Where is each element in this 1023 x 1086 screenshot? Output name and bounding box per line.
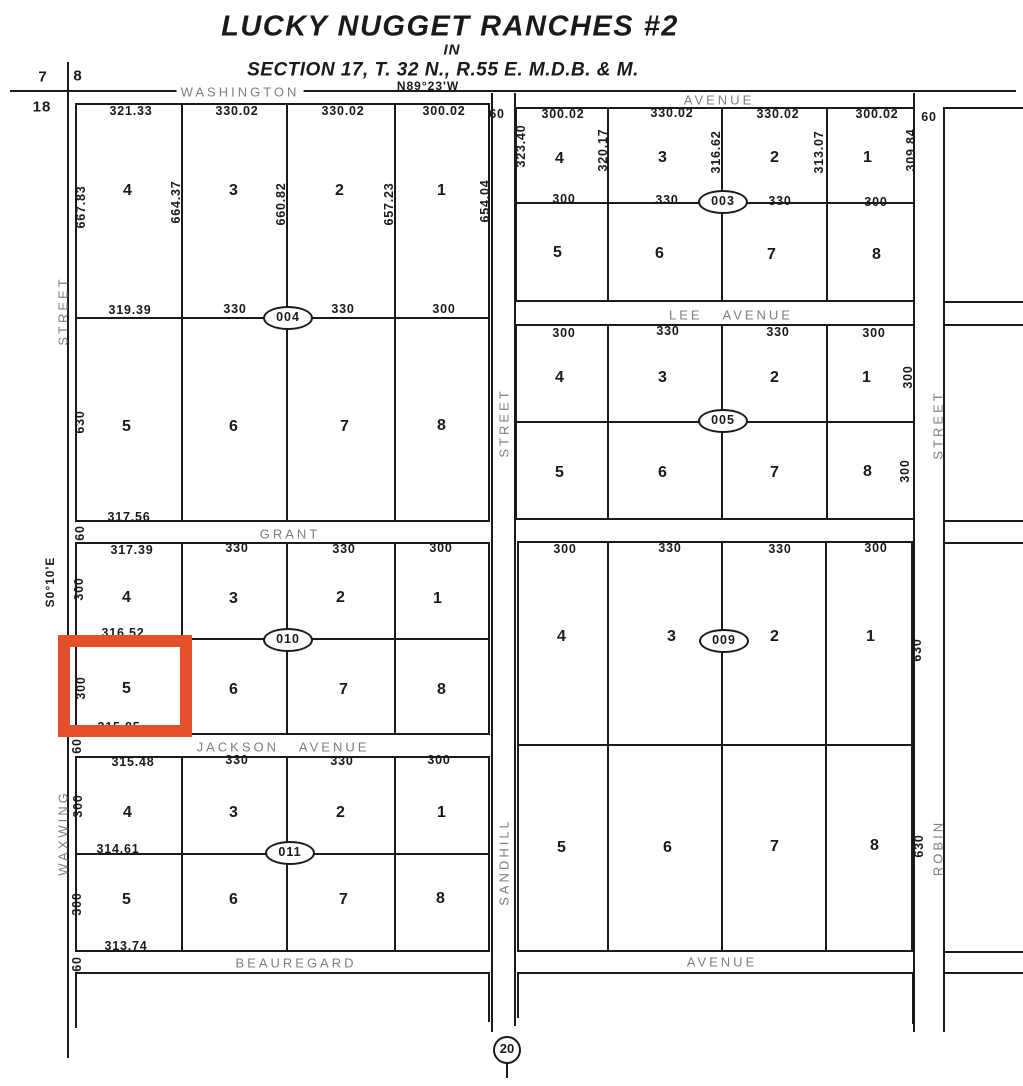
block-number-badge: 005 <box>698 409 748 433</box>
street-label-beauregard-avenue: AVENUE <box>687 956 758 969</box>
dimension-label: 319.39 <box>108 304 151 317</box>
dimension-label: 316.62 <box>710 130 723 173</box>
dimension-label: 330 <box>223 303 246 316</box>
street-label-beauregard: BEAUREGARD <box>235 957 356 970</box>
north-bearing-label: N89°23'W <box>397 80 459 92</box>
lot-number: 2 <box>336 590 346 606</box>
sandhill-street-west-line <box>491 93 493 1032</box>
selected-parcel-highlight[interactable] <box>58 635 192 737</box>
lot-number: 6 <box>655 246 665 262</box>
section-marker-18: 18 <box>33 100 52 115</box>
dimension-label: 300 <box>432 303 455 316</box>
dimension-label: 667.83 <box>75 185 88 228</box>
dimension-label: 330 <box>658 542 681 555</box>
plat-map: LUCKY NUGGET RANCHES #2 IN SECTION 17, T… <box>0 0 1023 1086</box>
dimension-label: 300 <box>552 327 575 340</box>
title-in-label: IN <box>444 43 461 58</box>
dimension-label: 630 <box>911 638 924 661</box>
street-label-washington-avenue: AVENUE <box>680 94 759 107</box>
section-20-tick <box>506 1063 508 1078</box>
block-number-badge: 011 <box>265 841 315 865</box>
lot-number: 4 <box>123 183 133 199</box>
dimension-label: 300 <box>73 577 86 600</box>
block-009-lot-line <box>721 541 723 952</box>
block-005-border <box>515 518 915 520</box>
lot-number: 8 <box>870 838 880 854</box>
street-width-label: 60 <box>71 738 84 754</box>
lot-number: 4 <box>123 805 133 821</box>
dimension-label: 330 <box>766 326 789 339</box>
dimension-label: 330 <box>655 194 678 207</box>
street-label-robin: ROBIN <box>932 820 945 876</box>
lot-number: 3 <box>667 629 677 645</box>
block-004-lot-line <box>394 103 396 522</box>
lot-number: 3 <box>229 183 239 199</box>
dimension-label: 330 <box>331 303 354 316</box>
partial-block-line <box>945 324 1023 326</box>
lot-number: 1 <box>437 183 447 199</box>
block-number-badge: 009 <box>699 629 749 653</box>
dimension-label: 300 <box>553 543 576 556</box>
lot-number: 7 <box>767 247 777 263</box>
partial-block-line <box>488 972 490 1022</box>
block-003-lot-line <box>826 107 828 302</box>
dimension-label: 300 <box>899 459 912 482</box>
block-number-badge: 004 <box>263 306 313 330</box>
lot-number: 7 <box>340 419 350 435</box>
lot-number: 4 <box>557 629 567 645</box>
dimension-label: 321.33 <box>109 105 152 118</box>
street-label-sandhill: SANDHILL <box>498 818 511 906</box>
block-009-border <box>517 541 519 952</box>
dimension-label: 300 <box>864 542 887 555</box>
dimension-label: 330 <box>225 754 248 767</box>
lot-number: 4 <box>555 370 565 386</box>
dimension-label: 330.02 <box>321 105 364 118</box>
page-title: LUCKY NUGGET RANCHES #2 <box>221 13 679 42</box>
lot-number: 2 <box>770 150 780 166</box>
dimension-label: 320.17 <box>597 128 610 171</box>
lot-number: 6 <box>658 465 668 481</box>
dimension-label: 313.07 <box>813 130 826 173</box>
lot-number: 1 <box>866 629 876 645</box>
lot-number: 8 <box>436 891 446 907</box>
block-009-lot-line <box>607 541 609 952</box>
lot-number: 6 <box>229 419 239 435</box>
street-label-grant: GRANT <box>260 528 321 541</box>
street-label-lee-avenue: LEE AVENUE <box>669 309 793 322</box>
block-number-badge: 010 <box>263 628 313 652</box>
lot-number: 5 <box>553 245 563 261</box>
lot-number: 8 <box>872 247 882 263</box>
robin-street-east-line <box>943 107 945 1032</box>
lot-number: 5 <box>122 892 132 908</box>
section-marker-7: 7 <box>38 70 47 85</box>
dimension-label: 323.40 <box>515 124 528 167</box>
dimension-label: 330 <box>768 195 791 208</box>
block-009-lot-line <box>825 541 827 952</box>
block-004-border <box>75 103 77 522</box>
lot-number: 1 <box>862 370 872 386</box>
partial-block-line <box>75 972 77 1028</box>
dimension-label: 300 <box>71 892 84 915</box>
dimension-label: 300 <box>552 193 575 206</box>
lot-number: 2 <box>336 805 346 821</box>
dimension-label: 300.02 <box>855 108 898 121</box>
lot-number: 5 <box>557 840 567 856</box>
dimension-label: 300.02 <box>422 105 465 118</box>
dimension-label: 317.56 <box>107 511 150 524</box>
lot-number: 3 <box>658 150 668 166</box>
block-009-border <box>911 541 913 952</box>
block-number-badge: 003 <box>698 190 748 214</box>
lot-number: 7 <box>770 839 780 855</box>
street-width-label: 60 <box>489 108 505 121</box>
street-label-sandhill-street: STREET <box>498 388 511 457</box>
street-width-label: 60 <box>921 111 937 124</box>
dimension-label: 300 <box>429 542 452 555</box>
dimension-label: 660.82 <box>275 182 288 225</box>
west-bearing-label: S0°10'E <box>44 557 56 608</box>
lot-number: 4 <box>555 151 565 167</box>
dimension-label: 330 <box>330 755 353 768</box>
dimension-label: 657.23 <box>383 182 396 225</box>
partial-block-line <box>945 542 1023 544</box>
partial-block-line <box>945 520 1023 522</box>
dimension-label: 314.61 <box>96 843 139 856</box>
lot-number: 3 <box>229 591 239 607</box>
dimension-label: 330 <box>225 542 248 555</box>
dimension-label: 330.02 <box>756 108 799 121</box>
street-width-label: 60 <box>71 956 84 972</box>
lot-number: 2 <box>335 183 345 199</box>
dimension-label: 330.02 <box>215 105 258 118</box>
lot-number: 1 <box>433 591 443 607</box>
partial-block-line <box>75 972 490 974</box>
block-004-border <box>488 103 490 522</box>
lot-number: 4 <box>122 590 132 606</box>
block-009-border <box>517 950 913 952</box>
partial-block-line <box>517 972 519 1018</box>
lot-number: 6 <box>229 892 239 908</box>
lot-number: 6 <box>229 682 239 698</box>
block-003-border <box>515 300 915 302</box>
dimension-label: 330 <box>656 325 679 338</box>
lot-number: 7 <box>339 892 349 908</box>
dimension-label: 654.04 <box>479 179 492 222</box>
street-label-washington: WASHINGTON <box>177 86 304 99</box>
dimension-label: 300 <box>427 754 450 767</box>
section-marker-8: 8 <box>73 69 82 84</box>
west-section-line <box>67 62 69 1058</box>
dimension-label: 313.74 <box>104 940 147 953</box>
lot-number: 3 <box>229 805 239 821</box>
lot-number: 6 <box>663 840 673 856</box>
street-label-jackson-avenue: JACKSON AVENUE <box>197 741 370 754</box>
partial-block-line <box>945 972 1023 974</box>
dimension-label: 300 <box>862 327 885 340</box>
section-marker-20: 20 <box>493 1036 521 1064</box>
dimension-label: 309.84 <box>905 128 918 171</box>
section-subtitle: SECTION 17, T. 32 N., R.55 E. M.D.B. & M… <box>247 61 639 80</box>
dimension-label: 630 <box>913 834 926 857</box>
dimension-label: 300 <box>72 794 85 817</box>
dimension-label: 330.02 <box>650 107 693 120</box>
partial-block-line <box>945 107 1023 109</box>
lot-number: 2 <box>770 629 780 645</box>
dimension-label: 664.37 <box>170 180 183 223</box>
partial-block-line <box>517 972 915 974</box>
street-width-label: 60 <box>74 525 87 541</box>
partial-block-line <box>945 951 1023 953</box>
lot-number: 8 <box>437 418 447 434</box>
lot-number: 2 <box>770 370 780 386</box>
dimension-label: 630 <box>74 410 87 433</box>
street-label-waxwing: WAXWING <box>57 790 70 876</box>
lot-number: 7 <box>339 682 349 698</box>
lot-number: 1 <box>863 150 873 166</box>
lot-number: 5 <box>555 465 565 481</box>
lot-number: 8 <box>863 464 873 480</box>
street-label-waxwing-street: STREET <box>57 276 70 345</box>
block-009-mid-line <box>517 744 913 746</box>
lot-number: 3 <box>658 370 668 386</box>
dimension-label: 300.02 <box>541 108 584 121</box>
north-section-line <box>10 90 1016 92</box>
block-004-lot-line <box>181 103 183 522</box>
dimension-label: 315.48 <box>111 756 154 769</box>
partial-block-line <box>945 301 1023 303</box>
lot-number: 5 <box>122 419 132 435</box>
lot-number: 8 <box>437 682 447 698</box>
street-label-robin-street: STREET <box>932 390 945 459</box>
dimension-label: 330 <box>768 543 791 556</box>
dimension-label: 317.39 <box>110 544 153 557</box>
dimension-label: 300 <box>864 196 887 209</box>
lot-number: 1 <box>437 805 447 821</box>
dimension-label: 330 <box>332 543 355 556</box>
lot-number: 7 <box>770 465 780 481</box>
dimension-label: 300 <box>902 365 915 388</box>
partial-block-line <box>912 972 914 1024</box>
